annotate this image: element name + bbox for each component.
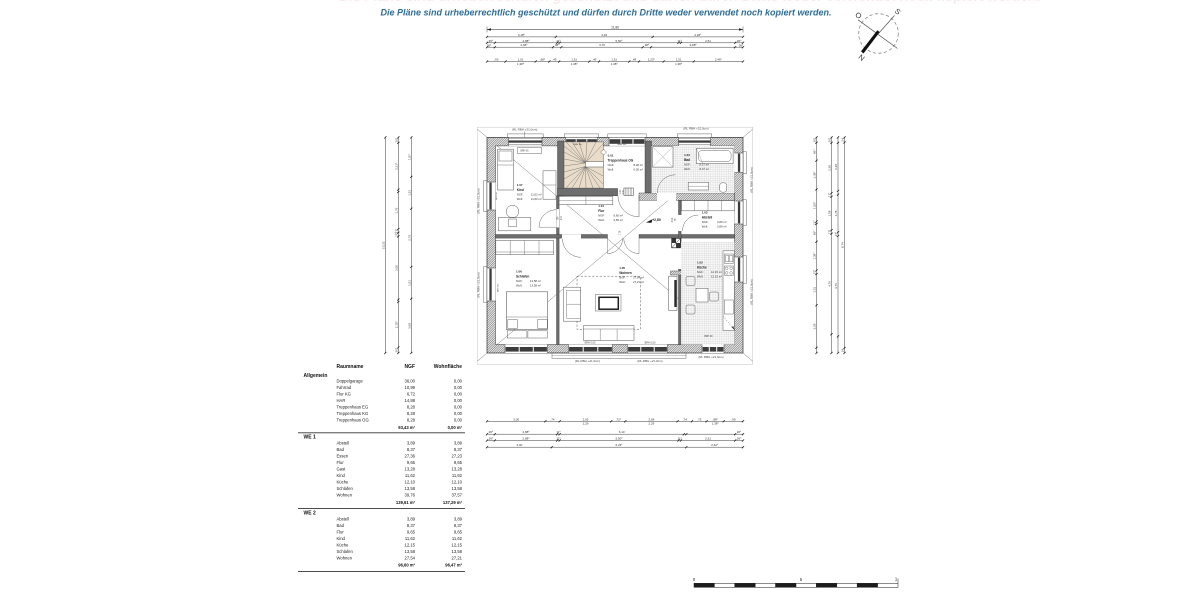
svg-text:Bad: Bad — [337, 447, 345, 452]
svg-text:17⁵: 17⁵ — [834, 231, 838, 236]
svg-text:,88⁵: ,88⁵ — [712, 417, 718, 421]
svg-text:2,76: 2,76 — [407, 235, 411, 241]
svg-text:0,00: 0,00 — [454, 418, 463, 423]
svg-text:8,74: 8,74 — [841, 242, 845, 248]
svg-text:BRH 90: BRH 90 — [498, 283, 500, 291]
svg-text:Bad: Bad — [337, 523, 345, 528]
svg-text:Treppenhaus OG: Treppenhaus OG — [608, 158, 634, 162]
svg-text:,74: ,74 — [550, 417, 555, 421]
svg-text:12,15: 12,15 — [405, 543, 416, 548]
svg-text:3,00: 3,00 — [513, 417, 519, 421]
svg-text:WE 1: WE 1 — [304, 435, 316, 441]
svg-text:2,01: 2,01 — [671, 217, 674, 222]
svg-text:Wofl:: Wofl: — [684, 167, 691, 171]
svg-text:0,00: 0,00 — [454, 398, 463, 403]
svg-text:3,00: 3,00 — [394, 265, 398, 271]
svg-text:3,00: 3,00 — [516, 443, 522, 447]
svg-text:37,57: 37,57 — [452, 493, 463, 498]
svg-text:Treppenhaus OG: Treppenhaus OG — [337, 418, 369, 423]
svg-text:BRH 90: BRH 90 — [520, 151, 529, 153]
svg-text:Schlafen: Schlafen — [516, 274, 529, 278]
svg-text:Küche: Küche — [337, 543, 350, 548]
svg-text:96,47 m²: 96,47 m² — [445, 563, 462, 568]
svg-text:11,62: 11,62 — [452, 536, 463, 541]
svg-text:0.01: 0.01 — [608, 154, 614, 158]
svg-text:8,28: 8,28 — [407, 418, 416, 423]
svg-text:2,62⁵: 2,62⁵ — [711, 443, 719, 447]
svg-text:10,22: 10,22 — [381, 241, 385, 249]
svg-text:17⁵: 17⁵ — [828, 229, 832, 234]
svg-text:4,76: 4,76 — [828, 281, 832, 287]
svg-text:(RL RBH +21,0cm): (RL RBH +21,0cm) — [637, 359, 662, 363]
svg-text:36⁵: 36⁵ — [487, 43, 492, 47]
svg-text:3,89: 3,89 — [454, 441, 463, 446]
svg-text:27,54: 27,54 — [405, 556, 416, 561]
svg-text:26⁵: 26⁵ — [828, 137, 832, 142]
svg-text:11⁵: 11⁵ — [556, 437, 561, 441]
svg-text:13,28: 13,28 — [405, 467, 416, 472]
svg-text:2,21⁵: 2,21⁵ — [394, 162, 398, 170]
svg-text:BRH 0,00: BRH 0,00 — [645, 341, 656, 344]
svg-text:8,37: 8,37 — [407, 447, 416, 452]
svg-text:13,58: 13,58 — [452, 486, 463, 491]
svg-text:2,15⁵: 2,15⁵ — [394, 320, 398, 328]
svg-text:,68⁵: ,68⁵ — [540, 58, 546, 62]
svg-text:BRH 90+: BRH 90+ — [618, 144, 628, 146]
svg-text:96,60 m²: 96,60 m² — [398, 563, 415, 568]
svg-text:(RL RBH +21,0cm): (RL RBH +21,0cm) — [749, 167, 753, 192]
svg-text:0,00 m²: 0,00 m² — [634, 167, 644, 171]
svg-text:12,15: 12,15 — [452, 543, 463, 548]
svg-text:137,29 m²: 137,29 m² — [443, 500, 463, 505]
svg-text:2,68⁵: 2,68⁵ — [520, 43, 528, 47]
svg-text:3,89: 3,89 — [407, 441, 416, 446]
svg-text:2,28: 2,28 — [834, 164, 838, 170]
svg-text:9,65: 9,65 — [454, 460, 463, 465]
svg-text:39,76: 39,76 — [405, 493, 416, 498]
svg-text:Wofl:: Wofl: — [619, 280, 626, 284]
svg-text:0,00: 0,00 — [454, 405, 463, 410]
svg-text:8,37: 8,37 — [454, 523, 463, 528]
svg-text:24: 24 — [841, 138, 845, 142]
svg-text:8,28: 8,28 — [407, 411, 416, 416]
svg-text:1,38⁵: 1,38⁵ — [813, 252, 817, 260]
svg-text:26⁵: 26⁵ — [489, 430, 494, 434]
svg-text:Wofl:: Wofl: — [598, 218, 605, 222]
svg-text:4,18⁵: 4,18⁵ — [694, 33, 702, 37]
svg-text:11⁵: 11⁵ — [678, 39, 683, 43]
svg-text:,72⁵: ,72⁵ — [616, 417, 622, 421]
svg-text:3,89: 3,89 — [454, 517, 463, 522]
svg-text:6,72: 6,72 — [407, 392, 416, 397]
svg-text:Bad: Bad — [684, 158, 690, 162]
svg-text:1.03: 1.03 — [702, 211, 708, 215]
svg-text:1.07: 1.07 — [517, 183, 523, 187]
svg-text:Kind: Kind — [337, 536, 346, 541]
svg-text:1,38⁵: 1,38⁵ — [611, 62, 619, 66]
svg-text:Wohnfläche: Wohnfläche — [434, 364, 462, 370]
svg-text:5,50⁵: 5,50⁵ — [615, 39, 623, 43]
svg-text:12,10: 12,10 — [405, 480, 416, 485]
svg-text:1.05: 1.05 — [619, 266, 625, 270]
svg-text:Doppelgarage: Doppelgarage — [337, 379, 364, 384]
svg-text:9,65 m²: 9,65 m² — [614, 218, 624, 222]
svg-text:Wofl:: Wofl: — [608, 167, 615, 171]
svg-text:1,23⁵: 1,23⁵ — [648, 58, 656, 62]
svg-text:13,28: 13,28 — [452, 467, 463, 472]
svg-text:8,37: 8,37 — [454, 447, 463, 452]
svg-text:13,58: 13,58 — [405, 486, 416, 491]
svg-text:24: 24 — [841, 349, 845, 353]
svg-text:5,50⁵: 5,50⁵ — [615, 437, 623, 441]
svg-text:Kind: Kind — [337, 473, 346, 478]
svg-text:2,51: 2,51 — [705, 437, 711, 441]
svg-text:2,69: 2,69 — [648, 417, 654, 421]
svg-text:6,23⁵: 6,23⁵ — [615, 443, 623, 447]
svg-text:26⁵: 26⁵ — [394, 137, 398, 142]
svg-text:27,36: 27,36 — [405, 454, 416, 459]
svg-text:0,00: 0,00 — [454, 392, 463, 397]
svg-text:11,86: 11,86 — [611, 25, 619, 29]
svg-text:1,51: 1,51 — [407, 190, 411, 196]
svg-text:0,00 m²: 0,00 m² — [448, 425, 463, 430]
svg-text:27,21: 27,21 — [452, 556, 463, 561]
svg-text:1,38⁵: 1,38⁵ — [571, 62, 579, 66]
svg-text:11,62: 11,62 — [405, 536, 416, 541]
svg-text:26⁵: 26⁵ — [737, 430, 742, 434]
svg-text:36⁵: 36⁵ — [737, 39, 742, 43]
svg-text:2,01: 2,01 — [622, 189, 625, 194]
svg-text:,49: ,49 — [632, 58, 637, 62]
svg-text:Treppenhaus KG: Treppenhaus KG — [337, 411, 369, 416]
svg-text:3,18⁵: 3,18⁵ — [518, 33, 526, 37]
svg-text:17⁵: 17⁵ — [828, 192, 832, 197]
svg-text:1,51: 1,51 — [571, 58, 577, 62]
svg-text:Die Pläne sind urheberrechtlic: Die Pläne sind urheberrechtlich geschütz… — [339, 0, 1041, 4]
svg-text:1,76: 1,76 — [394, 207, 398, 213]
svg-text:12,15 m²: 12,15 m² — [711, 274, 722, 278]
svg-text:0,00: 0,00 — [454, 411, 463, 416]
svg-text:1,38⁵: 1,38⁵ — [675, 62, 683, 66]
svg-text:+2,80: +2,80 — [652, 218, 661, 222]
svg-text:8,28: 8,28 — [407, 405, 416, 410]
svg-text:1,78: 1,78 — [834, 210, 838, 216]
svg-text:,99: ,99 — [731, 417, 736, 421]
svg-text:8,37: 8,37 — [407, 523, 416, 528]
svg-text:4,76: 4,76 — [834, 283, 838, 289]
svg-text:3,89 m²: 3,89 m² — [717, 224, 727, 228]
svg-text:,93: ,93 — [494, 58, 499, 62]
svg-text:Wohnen: Wohnen — [619, 271, 632, 275]
svg-text:0,00: 0,00 — [454, 379, 463, 384]
svg-text:(RL RBH +21,0cm): (RL RBH +21,0cm) — [698, 355, 723, 359]
svg-text:1.04: 1.04 — [684, 153, 690, 157]
svg-text:Wofl:: Wofl: — [697, 274, 704, 278]
svg-text:,74: ,74 — [683, 417, 688, 421]
svg-text:1,51: 1,51 — [611, 58, 617, 62]
svg-text:36,00: 36,00 — [405, 379, 416, 384]
svg-text:2,29: 2,29 — [583, 422, 589, 426]
svg-text:1.02: 1.02 — [697, 261, 703, 265]
svg-text:11,62: 11,62 — [452, 473, 463, 478]
svg-text:2,05: 2,05 — [813, 323, 817, 329]
svg-text:Wohnen: Wohnen — [337, 556, 353, 561]
svg-text:13,58: 13,58 — [405, 549, 416, 554]
svg-text:Küche: Küche — [337, 480, 350, 485]
svg-text:(RL RBH +21,0cm): (RL RBH +21,0cm) — [477, 188, 481, 213]
svg-text:11,62 m²: 11,62 m² — [531, 197, 542, 201]
svg-text:9,65: 9,65 — [407, 530, 416, 535]
svg-text:2,88⁵: 2,88⁵ — [522, 437, 530, 441]
svg-text:2,38: 2,38 — [828, 165, 832, 171]
svg-text:2,29: 2,29 — [648, 422, 654, 426]
svg-text:11,62: 11,62 — [405, 473, 416, 478]
svg-text:,49: ,49 — [552, 58, 557, 62]
svg-text:38⁵: 38⁵ — [555, 43, 560, 47]
svg-text:2,65: 2,65 — [583, 417, 589, 421]
svg-text:3,89: 3,89 — [407, 517, 416, 522]
svg-text:Treppenhaus EG: Treppenhaus EG — [337, 405, 369, 410]
svg-text:14,88: 14,88 — [405, 398, 416, 403]
svg-text:3,88⁵: 3,88⁵ — [690, 43, 698, 47]
svg-text:17⁵: 17⁵ — [394, 232, 398, 237]
svg-text:26⁵: 26⁵ — [489, 437, 494, 441]
svg-text:Schlafen: Schlafen — [337, 549, 354, 554]
svg-text:Wofl:: Wofl: — [517, 197, 524, 201]
svg-text:Abstell: Abstell — [337, 441, 350, 446]
svg-text:26⁵: 26⁵ — [813, 137, 817, 142]
svg-text:11⁵: 11⁵ — [556, 430, 561, 434]
svg-text:86⁵: 86⁵ — [813, 230, 817, 235]
svg-text:3,09: 3,09 — [407, 323, 411, 329]
svg-text:9,65: 9,65 — [454, 530, 463, 535]
svg-text:Flur: Flur — [337, 530, 345, 535]
svg-text:27,21 m²: 27,21 m² — [633, 280, 644, 284]
svg-text:93,43 m²: 93,43 m² — [398, 425, 415, 430]
svg-text:86⁵: 86⁵ — [813, 149, 817, 154]
svg-text:Die Pläne sind urheberrechtlic: Die Pläne sind urheberrechtlich geschütz… — [380, 7, 831, 17]
svg-text:36⁵: 36⁵ — [489, 39, 494, 43]
svg-text:,49: ,49 — [592, 58, 597, 62]
svg-text:1,51: 1,51 — [407, 280, 411, 286]
svg-text:1,51: 1,51 — [813, 286, 817, 292]
svg-text:139,61 m²: 139,61 m² — [396, 500, 416, 505]
svg-text:2,51: 2,51 — [705, 39, 711, 43]
svg-text:Raumname: Raumname — [337, 364, 364, 370]
svg-text:17⁵: 17⁵ — [813, 269, 817, 274]
svg-text:27,23: 27,23 — [452, 454, 463, 459]
svg-text:3,76: 3,76 — [599, 43, 605, 47]
svg-text:Küche: Küche — [697, 265, 707, 269]
svg-text:Abstell: Abstell — [702, 215, 713, 219]
svg-text:Abstell: Abstell — [337, 517, 350, 522]
svg-text:2,01: 2,01 — [561, 215, 563, 220]
svg-text:9,65: 9,65 — [407, 460, 416, 465]
svg-text:11⁵: 11⁵ — [556, 39, 561, 43]
svg-text:,75: ,75 — [697, 417, 702, 421]
svg-text:1.01: 1.01 — [598, 204, 604, 208]
svg-text:2,88⁵: 2,88⁵ — [522, 39, 530, 43]
svg-text:Wohnen: Wohnen — [337, 493, 353, 498]
svg-text:0,00: 0,00 — [454, 385, 463, 390]
svg-text:(RL RBH +21,0cm): (RL RBH +21,0cm) — [512, 128, 537, 132]
svg-text:8,37 m²: 8,37 m² — [700, 167, 710, 171]
svg-text:NGF: NGF — [404, 364, 415, 370]
svg-text:1,38⁵: 1,38⁵ — [813, 171, 817, 179]
svg-text:1,76: 1,76 — [620, 230, 622, 235]
svg-text:1,51: 1,51 — [518, 58, 524, 62]
svg-text:Fahrrad: Fahrrad — [337, 385, 352, 390]
svg-text:Wofl:: Wofl: — [702, 224, 709, 228]
svg-text:WE 2: WE 2 — [304, 511, 316, 517]
svg-text:Flur KG: Flur KG — [337, 392, 351, 397]
svg-text:1,38⁵: 1,38⁵ — [517, 62, 525, 66]
svg-text:(RL RBH +21,0cm): (RL RBH +21,0cm) — [477, 272, 481, 297]
svg-text:(RL RBH +21,0cm): (RL RBH +21,0cm) — [575, 359, 600, 363]
svg-text:Wofl:: Wofl: — [516, 283, 523, 287]
svg-text:1,51: 1,51 — [676, 58, 682, 62]
svg-text:HAR: HAR — [337, 398, 346, 403]
svg-text:(RL RBH +21,0cm): (RL RBH +21,0cm) — [749, 279, 753, 304]
svg-text:Schlafen: Schlafen — [337, 486, 354, 491]
svg-text:Flur: Flur — [598, 209, 605, 213]
svg-text:(RL RBH +21,0cm): (RL RBH +21,0cm) — [683, 127, 708, 131]
svg-text:26⁵: 26⁵ — [737, 437, 742, 441]
svg-text:1,58: 1,58 — [828, 210, 832, 216]
svg-text:6,13: 6,13 — [619, 430, 625, 434]
svg-text:Flur: Flur — [337, 460, 345, 465]
svg-text:13,58 m²: 13,58 m² — [530, 283, 541, 287]
svg-text:13,58: 13,58 — [452, 549, 463, 554]
svg-text:1,87: 1,87 — [407, 154, 411, 160]
svg-text:ERH 0,00: ERH 0,00 — [585, 341, 596, 344]
svg-text:4,49: 4,49 — [601, 33, 607, 37]
svg-text:BRH 90+: BRH 90+ — [574, 144, 584, 146]
svg-text:BRH 90: BRH 90 — [496, 191, 498, 199]
svg-text:2,88⁵: 2,88⁵ — [522, 430, 530, 434]
svg-text:11⁵: 11⁵ — [678, 437, 683, 441]
svg-text:38⁵: 38⁵ — [645, 43, 650, 47]
svg-text:Kind: Kind — [517, 188, 524, 192]
svg-text:1.06: 1.06 — [516, 270, 522, 274]
svg-text:26⁵: 26⁵ — [394, 347, 398, 352]
svg-text:1,55⁵: 1,55⁵ — [813, 201, 817, 209]
svg-text:1,38⁵: 1,38⁵ — [712, 422, 720, 426]
svg-text:11⁵: 11⁵ — [813, 220, 817, 225]
svg-text:12,10: 12,10 — [452, 480, 463, 485]
svg-text:Essen: Essen — [337, 454, 349, 459]
svg-text:BRH 90: BRH 90 — [704, 336, 713, 338]
svg-text:Gast: Gast — [337, 467, 347, 472]
svg-text:10,99: 10,99 — [405, 385, 416, 390]
svg-text:36⁵: 36⁵ — [739, 43, 744, 47]
svg-text:2,46⁵: 2,46⁵ — [715, 58, 723, 62]
svg-text:Allgemein: Allgemein — [304, 373, 328, 379]
